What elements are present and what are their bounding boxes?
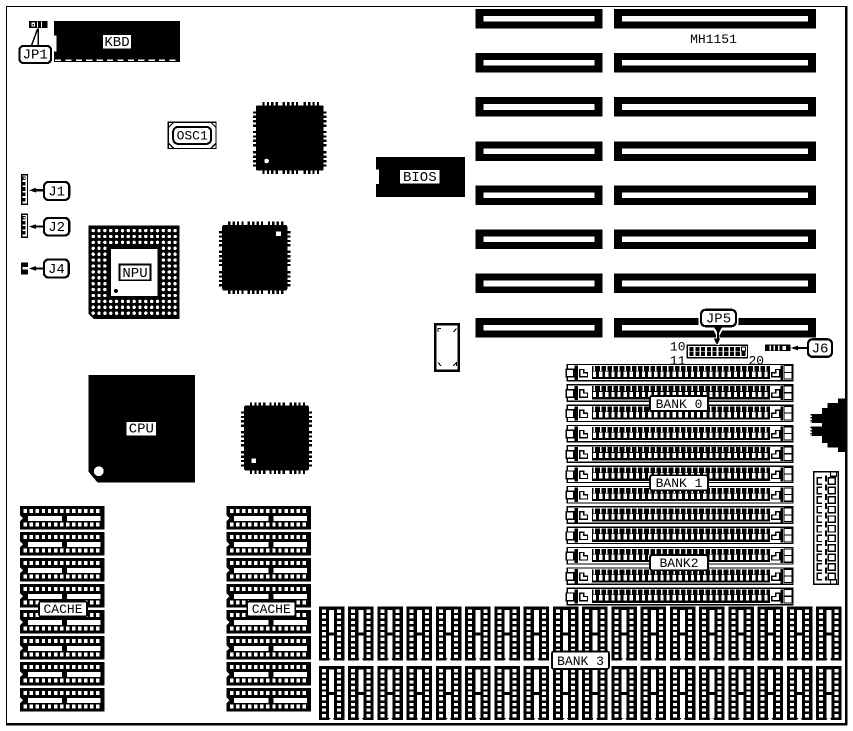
svg-text:MH1151: MH1151 [690,32,737,47]
svg-text:J4: J4 [48,262,65,278]
svg-text:KBD: KBD [104,35,129,51]
svg-text:JP1: JP1 [23,48,48,64]
svg-text:20: 20 [749,354,765,369]
svg-text:BANK 1: BANK 1 [656,476,703,491]
svg-text:JP5: JP5 [706,311,731,327]
svg-text:J2: J2 [48,220,65,236]
svg-text:J1: J1 [48,185,65,201]
svg-text:BANK 0: BANK 0 [656,397,703,412]
svg-text:BIOS: BIOS [403,170,437,186]
svg-text:CACHE: CACHE [43,602,82,617]
svg-text:BANK2: BANK2 [659,556,698,571]
svg-text:11: 11 [670,354,686,369]
svg-text:NPU: NPU [122,266,147,282]
svg-text:BANK 3: BANK 3 [557,654,604,669]
svg-text:CPU: CPU [129,422,154,438]
svg-text:10: 10 [670,340,686,355]
svg-text:J6: J6 [812,342,829,358]
svg-text:CACHE: CACHE [252,602,291,617]
svg-text:OSC1: OSC1 [177,128,208,143]
